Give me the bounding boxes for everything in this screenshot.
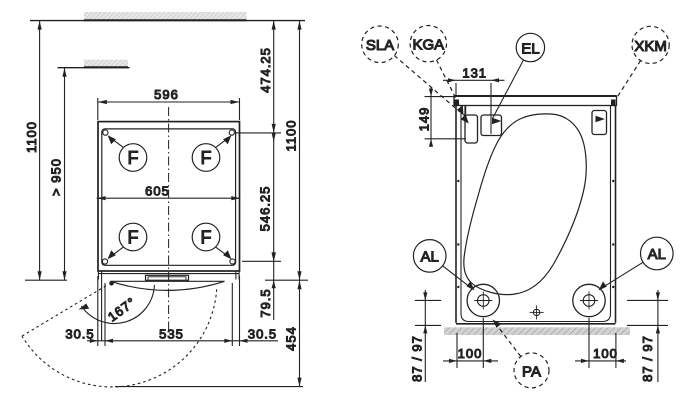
svg-text:131: 131 — [462, 65, 487, 80]
svg-text:79.5: 79.5 — [258, 288, 273, 317]
svg-text:87 / 97: 87 / 97 — [640, 335, 655, 382]
svg-text:474.25: 474.25 — [258, 47, 273, 93]
svg-text:596: 596 — [154, 87, 179, 102]
svg-text:AL: AL — [648, 246, 666, 263]
svg-text:KGA: KGA — [412, 37, 444, 54]
svg-text:100: 100 — [593, 346, 618, 361]
svg-text:454: 454 — [284, 326, 299, 351]
svg-text:535: 535 — [159, 327, 184, 342]
svg-text:F: F — [201, 148, 212, 168]
svg-text:1100: 1100 — [24, 121, 39, 153]
svg-text:SLA: SLA — [366, 37, 394, 54]
svg-text:1100: 1100 — [284, 120, 299, 152]
svg-text:XKM: XKM — [634, 38, 667, 55]
svg-text:F: F — [128, 148, 139, 168]
svg-text:149: 149 — [417, 107, 432, 132]
svg-text:EL: EL — [521, 41, 539, 58]
svg-text:F: F — [201, 228, 212, 248]
svg-text:605: 605 — [145, 184, 170, 199]
svg-text:AL: AL — [421, 248, 439, 265]
svg-text:PA: PA — [522, 363, 541, 380]
svg-text:F: F — [128, 228, 139, 248]
svg-text:87 / 97: 87 / 97 — [410, 335, 425, 382]
svg-text:30.5: 30.5 — [65, 327, 94, 342]
svg-text:546.25: 546.25 — [258, 186, 273, 232]
svg-text:100: 100 — [458, 346, 483, 361]
svg-text:> 950: > 950 — [49, 158, 64, 196]
svg-text:30.5: 30.5 — [248, 327, 277, 342]
